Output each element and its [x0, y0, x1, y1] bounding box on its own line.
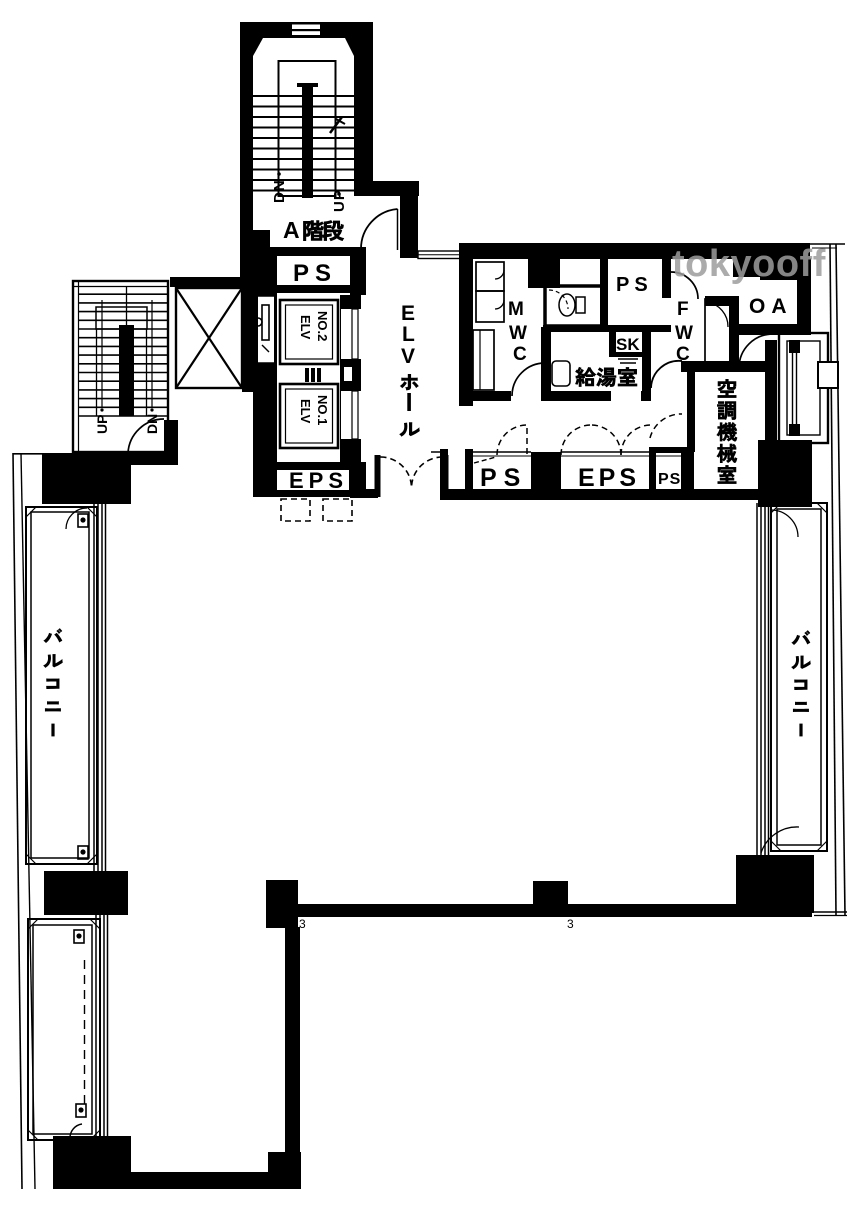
svg-text:NO.2: NO.2 [315, 311, 330, 341]
svg-text:DN: DN [271, 179, 288, 203]
svg-text:A: A [283, 217, 300, 243]
svg-text:UP: UP [94, 415, 110, 434]
svg-text:E: E [401, 302, 417, 325]
svg-text:SK: SK [616, 335, 640, 354]
svg-text:ELV: ELV [298, 315, 313, 340]
svg-text:EPS: EPS [578, 464, 640, 492]
svg-text:OA: OA [749, 295, 793, 318]
svg-text:PS: PS [480, 464, 527, 492]
svg-text:3: 3 [567, 917, 574, 931]
svg-text:F: F [677, 299, 689, 320]
svg-text:ELV: ELV [298, 399, 313, 424]
svg-text:EPS: EPS [289, 468, 348, 493]
svg-text:NO.1: NO.1 [315, 395, 330, 425]
svg-text:W: W [509, 323, 527, 344]
svg-text:PS: PS [616, 274, 653, 296]
svg-text:W: W [675, 323, 693, 344]
svg-text:tokyooff: tokyooff [672, 243, 826, 285]
svg-text:V: V [401, 345, 415, 368]
svg-text:C: C [513, 344, 527, 365]
svg-text:PS: PS [658, 471, 681, 488]
svg-text:3: 3 [299, 917, 306, 931]
svg-text:PS: PS [293, 260, 337, 287]
svg-text:M: M [508, 299, 524, 320]
svg-text:L: L [402, 323, 415, 346]
